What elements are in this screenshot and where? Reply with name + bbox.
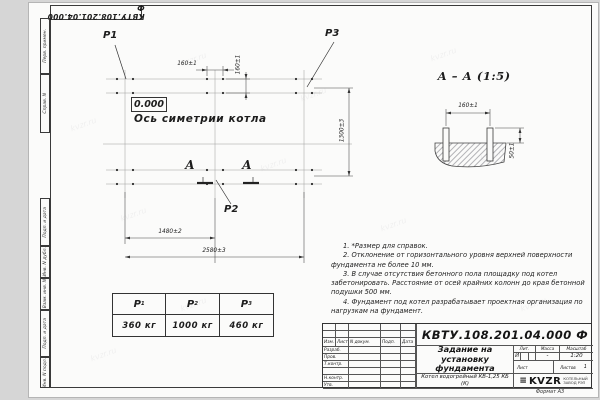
role-prov: Пров. [323, 354, 349, 361]
lit-value: И [513, 353, 520, 362]
load-point-p1-label: P1 [103, 30, 117, 41]
dim-2580: 2580±3 [194, 248, 234, 254]
load-table-header-p3: P3 [220, 294, 273, 315]
load-table: P1 P2 P3 360 кг 1000 кг 460 кг [112, 293, 274, 337]
load-point-p2-label: P2 [224, 204, 238, 215]
sheets-total: 1 [584, 364, 587, 370]
role-razrab: Разраб. [323, 347, 349, 354]
kvzr-logo-bars-icon: ≡ [519, 376, 527, 386]
doc-number: КВТУ.108.201.04.000 Ф [416, 324, 593, 346]
note-1: 1. *Размер для справок. [331, 242, 593, 251]
company-name-line2: ЗАВОД РЭП [563, 381, 587, 385]
dim-section-50: 50±1 [510, 138, 519, 164]
dim-section-160: 160±1 [450, 103, 486, 109]
title-block: Изм. Лист N докум. Подп. Дата Разраб. Пр… [322, 323, 592, 388]
symmetry-axis-label: Ось симетрии котла [134, 113, 267, 125]
role-utv: Утв. [323, 382, 349, 389]
dim-1300: 1300±3 [340, 113, 349, 149]
elevation-mark: 0.000 [131, 97, 167, 112]
section-cut-marks [197, 177, 259, 183]
technical-notes: 1. *Размер для справок. 2. Отклонение от… [331, 242, 593, 316]
note-4: 4. Фундамент под котел разрабатывает про… [331, 298, 593, 317]
load-point-p3-label: P3 [325, 28, 339, 39]
scale-value: 1:20 [559, 353, 593, 362]
company-cell: ≡ KVZR КОТЕЛЬНЫЙ ЗАВОД РЭП [513, 374, 593, 389]
kvzr-logo-text: KVZR [529, 376, 561, 387]
load-value-p1: 360 кг [113, 315, 166, 336]
product-name: Котел водогрейный КВ-1,25 КБ (К) [416, 374, 513, 389]
engineering-drawing-sheet: { "watermark": "kvzr.ru", "icons": { "lo… [0, 0, 600, 400]
dim-1480: 1480±2 [150, 229, 190, 235]
note-2: 2. Отклонение от горизонтального уровня … [331, 251, 593, 270]
mass-value: - [535, 353, 559, 362]
section-view-title: А – А (1:5) [430, 69, 518, 83]
anchor-bolt [443, 128, 449, 161]
revision-table: Изм. Лист N докум. Подп. Дата Разраб. Пр… [323, 324, 416, 389]
section-letter-right: А [242, 158, 252, 172]
role-tkontr: Т.контр. [323, 361, 349, 368]
anchor-bolt-dots [116, 78, 313, 185]
sheet-label: Лист [513, 361, 553, 374]
load-value-p3: 460 кг [220, 315, 273, 336]
doc-title: Задание на установку фундамента [416, 346, 513, 374]
role-nkontr: Н.контр. [323, 375, 349, 382]
format-label: Формат А3 [528, 389, 572, 395]
load-value-p2: 1000 кг [166, 315, 219, 336]
section-letter-left: А [185, 158, 195, 172]
dim-bolt-spacing-v: 160±1 [236, 49, 245, 81]
load-table-header-p2: P2 [166, 294, 219, 315]
note-3: 3. В случае отсутствия бетонного пола пл… [331, 270, 593, 298]
sheets-cell: Листов 1 [553, 361, 593, 374]
plan-centerlines [103, 70, 352, 198]
anchor-bolt [487, 128, 493, 161]
section-view-geometry [435, 128, 506, 167]
load-table-header-p1: P1 [113, 294, 166, 315]
dim-bolt-spacing-h: 160±1 [169, 61, 205, 67]
